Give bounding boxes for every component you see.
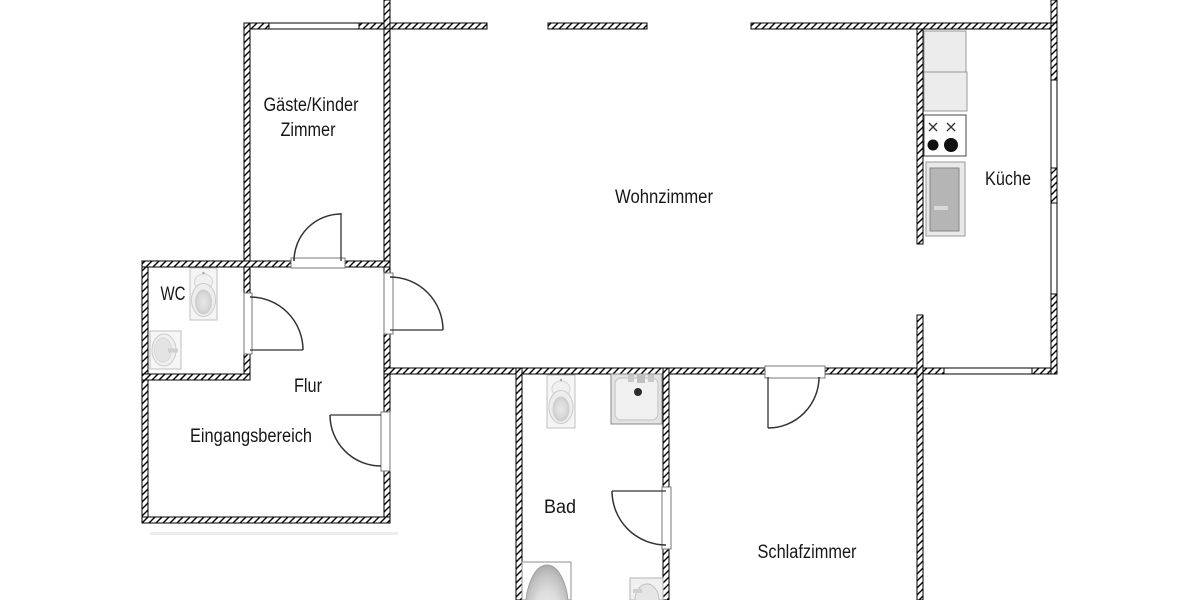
svg-text:Bad: Bad bbox=[544, 497, 576, 518]
svg-text:Zimmer: Zimmer bbox=[281, 120, 337, 141]
svg-text:Schlafzimmer: Schlafzimmer bbox=[758, 542, 858, 563]
svg-text:Flur: Flur bbox=[294, 376, 323, 397]
svg-text:Gäste/Kinder: Gäste/Kinder bbox=[264, 95, 360, 116]
svg-text:WC: WC bbox=[161, 284, 186, 305]
svg-text:Wohnzimmer: Wohnzimmer bbox=[615, 187, 714, 208]
svg-text:Eingangsbereich: Eingangsbereich bbox=[190, 426, 312, 447]
svg-text:Küche: Küche bbox=[985, 169, 1031, 190]
